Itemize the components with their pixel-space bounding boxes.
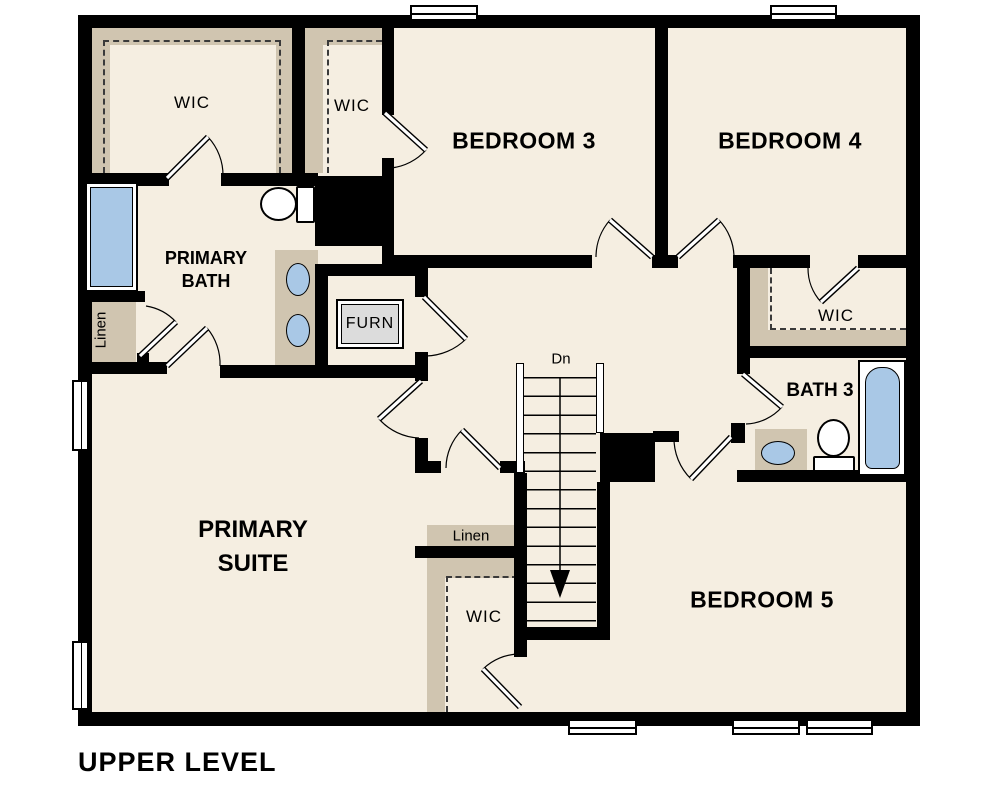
window (72, 641, 89, 710)
closet-rod (279, 40, 281, 173)
wall (597, 482, 610, 640)
wall (221, 173, 318, 186)
floor-plan: FURN (0, 0, 1000, 800)
window (770, 5, 837, 21)
shelf-wic-primary-left (92, 28, 110, 173)
wall (137, 353, 149, 367)
label-stairs-down: Dn (551, 351, 570, 368)
room-label-wic-bedroom4: WIC (818, 306, 854, 326)
shelf-wic-bedroom5-top (427, 558, 518, 578)
sink (286, 314, 310, 347)
wall (737, 346, 906, 358)
room-label-primary-bath: PRIMARY BATH (165, 247, 247, 293)
shelf-wic-bedroom3-left (305, 28, 323, 173)
closet-rod (446, 576, 448, 712)
wall (78, 291, 145, 302)
wall (220, 365, 330, 378)
window (732, 719, 800, 735)
wall (906, 15, 920, 726)
window (806, 719, 873, 735)
plan-title: UPPER LEVEL (78, 747, 277, 778)
wall (731, 423, 745, 443)
shelf-wic-primary-top (92, 28, 292, 45)
window (568, 719, 637, 735)
window (410, 5, 478, 21)
stair-rail (596, 363, 604, 433)
wall (415, 264, 428, 297)
closet-rod (327, 40, 382, 42)
label-linen-hall: Linen (453, 528, 490, 545)
closet-rod (446, 576, 518, 578)
closet-rod (103, 40, 105, 173)
shower-pan (90, 187, 133, 287)
toilet-bowl (260, 187, 297, 221)
toilet-tank (813, 456, 855, 472)
shelf-wic-bedroom4-left (750, 268, 768, 330)
wall (315, 264, 328, 378)
wall (382, 15, 394, 115)
wall (652, 255, 678, 268)
shelf-wic-bedroom3-top (305, 28, 382, 45)
room-label-primary-suite: PRIMARY SUITE (198, 513, 308, 581)
wall (415, 461, 441, 473)
room-label-wic-bedroom5: WIC (466, 607, 502, 627)
furnace-label: FURN (341, 304, 399, 344)
wall (653, 431, 679, 442)
bathtub (865, 367, 900, 469)
shelf-wic-bedroom4-bottom (750, 330, 906, 346)
room-label-bath3: BATH 3 (786, 380, 853, 402)
closet-rod (770, 328, 906, 330)
label-linen-primary: Linen (93, 312, 110, 349)
room-label-wic-primary: WIC (174, 93, 210, 113)
shelf-wic-bedroom5-left (427, 558, 445, 712)
chase (315, 176, 394, 246)
window (72, 380, 89, 451)
wall (858, 255, 906, 268)
wall (315, 264, 428, 276)
room-label-bedroom4: BEDROOM 4 (718, 128, 862, 155)
toilet-bowl (817, 419, 850, 457)
furnace: FURN (336, 299, 404, 349)
closet-rod (103, 40, 281, 42)
room-label-bedroom5: BEDROOM 5 (690, 587, 834, 614)
stair-treads (524, 377, 596, 639)
toilet-tank (296, 186, 315, 223)
room-label-wic-bedroom3: WIC (334, 96, 370, 116)
sink (286, 263, 310, 296)
stair-rail (516, 363, 524, 473)
wall (415, 546, 518, 558)
sink (761, 441, 795, 465)
wall (78, 362, 167, 374)
closet-rod (770, 268, 772, 330)
wall (655, 15, 668, 268)
chase (600, 433, 655, 482)
wall (315, 365, 428, 378)
room-label-bedroom3: BEDROOM 3 (452, 128, 596, 155)
wall (292, 15, 305, 186)
closet-rod (327, 40, 329, 173)
